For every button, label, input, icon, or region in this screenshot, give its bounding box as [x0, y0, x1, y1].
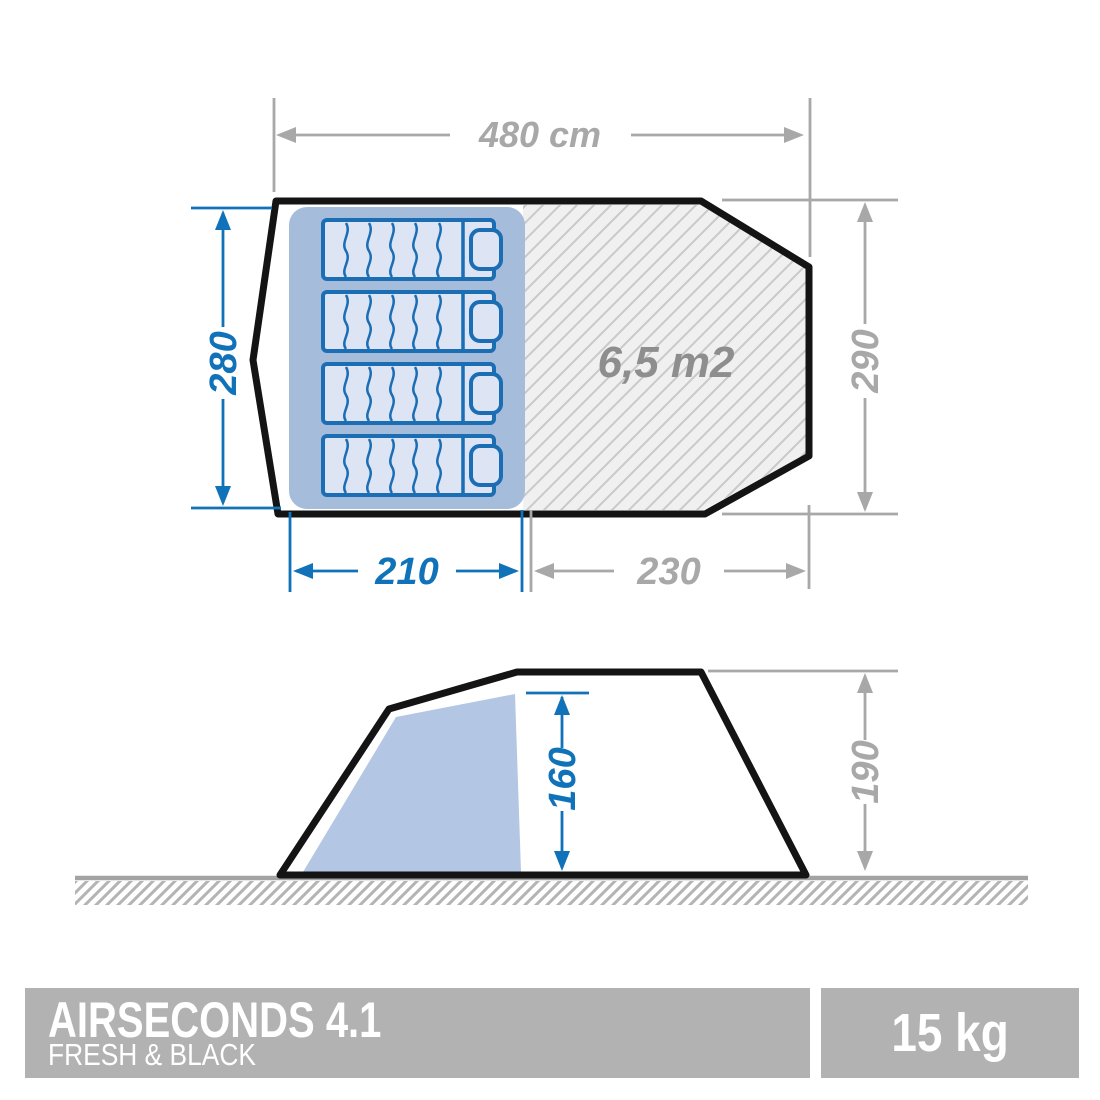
arrow-up-icon — [215, 210, 231, 230]
outer-height-label: 190 — [845, 740, 887, 803]
mattress — [323, 292, 501, 351]
total-width-label: 480 cm — [478, 114, 601, 155]
arrow-up-icon — [857, 202, 873, 222]
product-name-panel: AIRSECONDS 4.1 FRESH & BLACK — [25, 988, 810, 1078]
arrow-up-icon — [554, 695, 570, 715]
tent-dimensions-diagram: 480 cm 280 290 — [0, 0, 1100, 1100]
arrow-right-icon — [784, 127, 804, 143]
mattress — [323, 436, 501, 495]
bedroom-width-label: 210 — [374, 551, 438, 593]
arrow-right-icon — [499, 563, 519, 579]
side-view: 160 190 — [75, 671, 1028, 905]
weight-panel: 15 kg — [821, 988, 1079, 1078]
mattress — [323, 220, 501, 279]
arrow-up-icon — [857, 673, 873, 693]
right-depth-label: 290 — [845, 329, 887, 393]
side-bedroom-area — [303, 694, 521, 872]
diagram-canvas: 480 cm 280 290 — [0, 0, 1100, 980]
living-surface-label: 6,5 m2 — [598, 338, 736, 387]
mattress — [323, 364, 501, 423]
arrow-down-icon — [215, 486, 231, 506]
arrow-down-icon — [857, 492, 873, 512]
arrow-down-icon — [857, 851, 873, 871]
arrow-left-icon — [276, 127, 296, 143]
arrow-left-icon — [534, 563, 554, 579]
product-weight: 15 kg — [891, 1006, 1008, 1060]
arrow-down-icon — [554, 851, 570, 871]
ground-hatch — [75, 881, 1028, 905]
top-view: 480 cm 280 290 — [191, 98, 898, 593]
arrow-left-icon — [293, 563, 313, 579]
living-area-label: 230 — [636, 551, 700, 593]
product-line: FRESH & BLACK — [48, 1039, 256, 1070]
inner-height-label: 160 — [542, 747, 584, 810]
left-depth-label: 280 — [203, 331, 245, 395]
arrow-right-icon — [786, 563, 806, 579]
